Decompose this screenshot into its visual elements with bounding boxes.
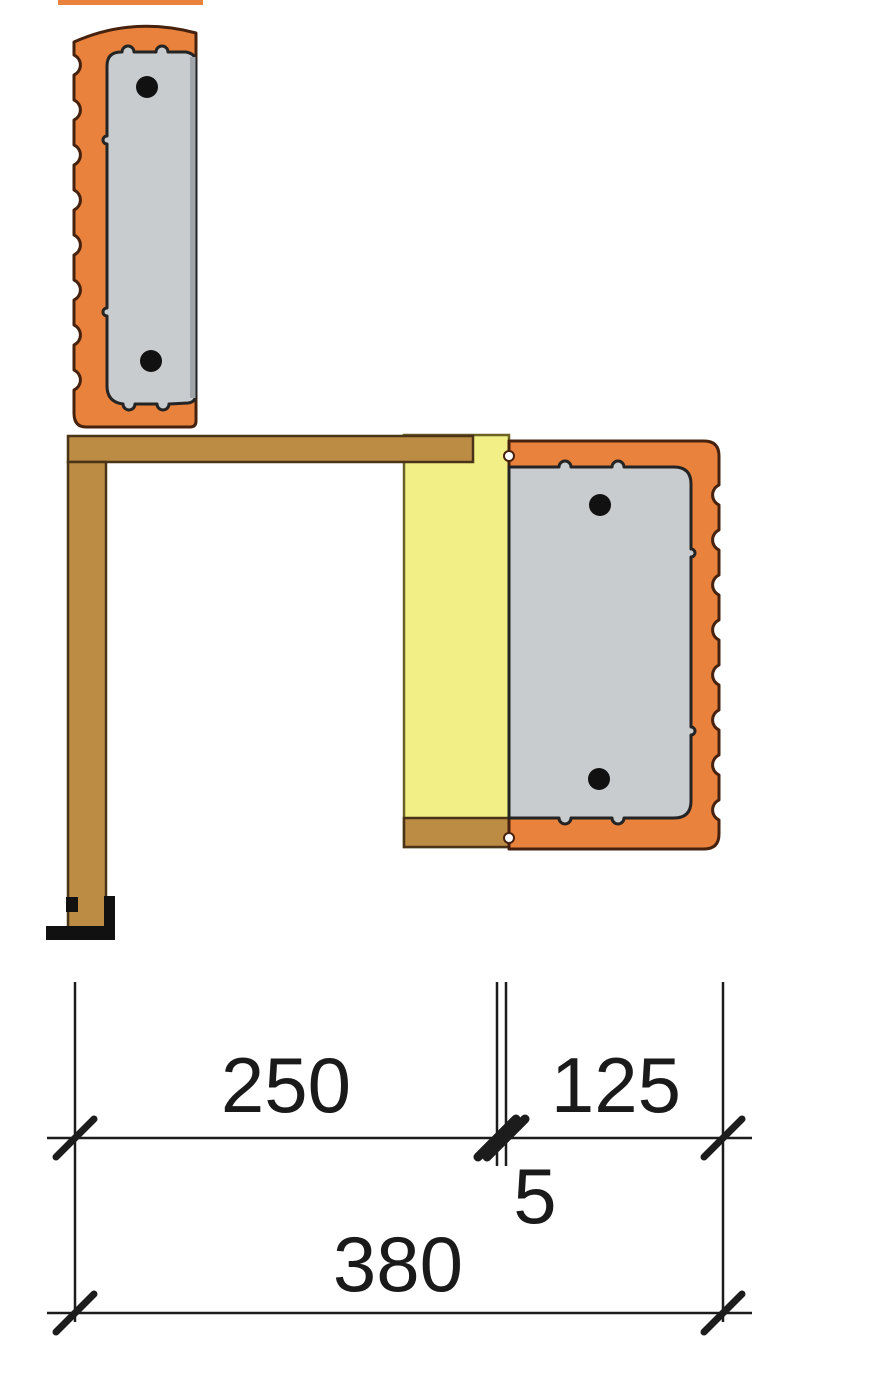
clay-block-right [504,441,719,849]
bracket-horizontal-leg [46,926,115,940]
insulation-column [404,435,509,847]
insulation-board [404,435,509,847]
concrete-cut-edge [190,57,196,398]
dimension-lines: 250 125 5 380 [47,982,752,1332]
rebar-dot [589,494,611,516]
rebar-dot [136,76,158,98]
dim-value-380: 380 [333,1220,463,1308]
timber-strip-bottom [404,818,509,847]
dim-value-250: 250 [221,1041,351,1129]
timber-beam [68,436,473,462]
construction-detail-drawing: 250 125 5 380 [0,0,881,1393]
timber-post [68,462,106,933]
dim-value-125: 125 [551,1041,681,1129]
rebar-dot [588,768,610,790]
block-groove-nub [504,833,514,843]
brick-course-cutoff [58,0,203,5]
clay-block-top-left [74,26,196,427]
section-drawing: 250 125 5 380 [0,0,881,1393]
rebar-dot [140,350,162,372]
block-groove-nub [504,451,514,461]
dim-value-5: 5 [513,1152,556,1240]
bracket-left-nub [66,897,78,912]
